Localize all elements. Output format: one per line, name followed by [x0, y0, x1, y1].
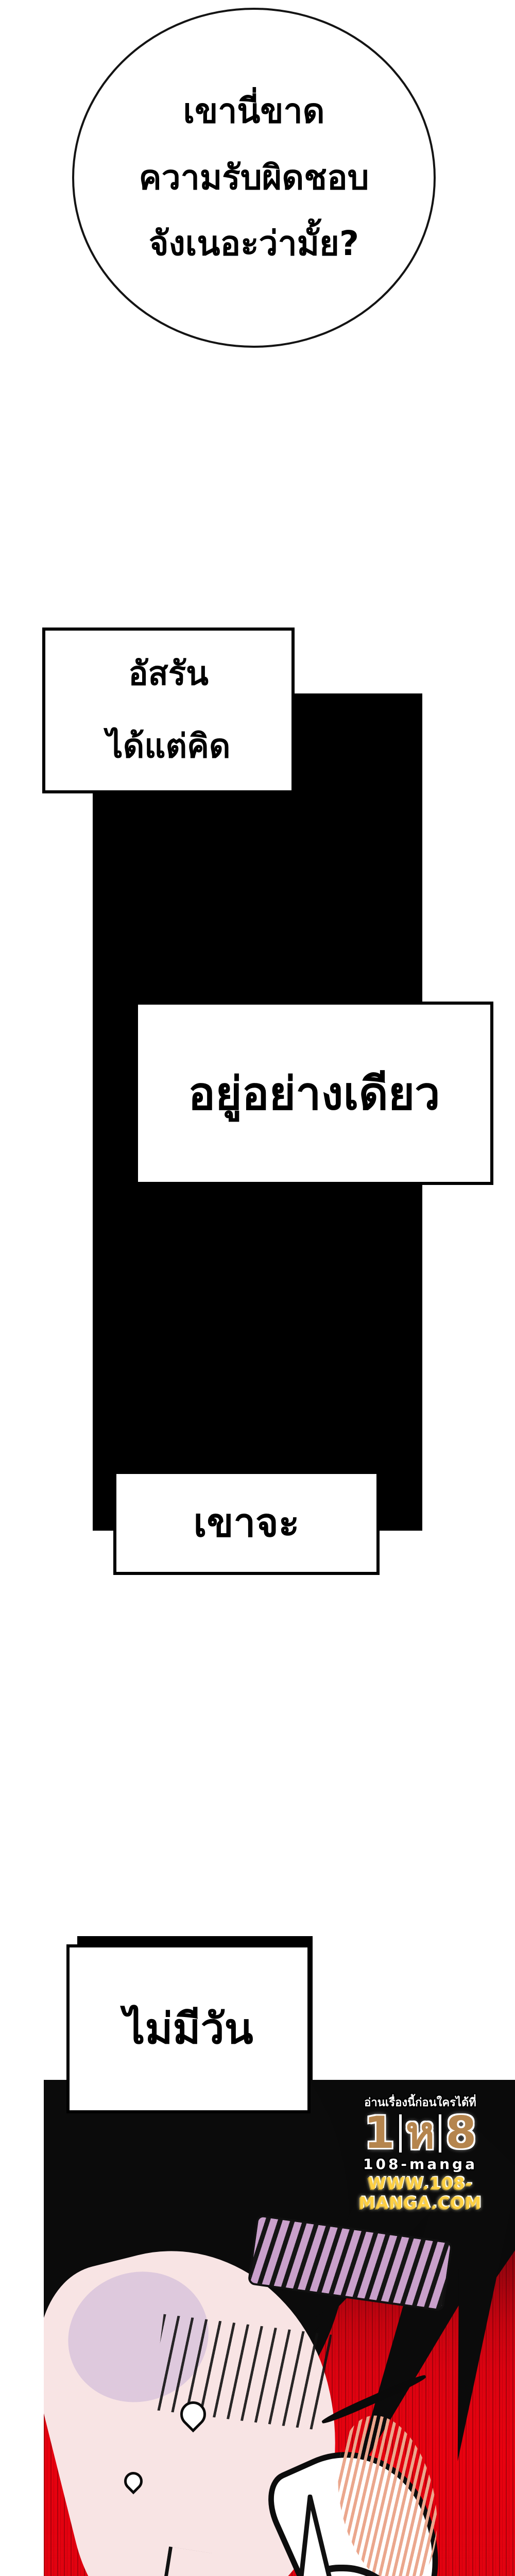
caption-line: ไม่มีวัน: [124, 1995, 253, 2062]
speech-bubble-tail: [295, 2495, 341, 2576]
caption-line: อัสรัน: [128, 638, 209, 710]
watermark-url: WWW.108-MANGA.COM: [329, 2174, 512, 2213]
speech-line: จังเนอะว่ามั้ย?: [149, 211, 359, 277]
watermark-logo-h: ห: [406, 2112, 435, 2155]
caption-box-asran: อัสรัน ได้แต่คิด: [42, 628, 295, 793]
caption-box-he-will: เขาจะ: [113, 1471, 380, 1575]
manga-page: เขานี่ขาด ความรับผิดชอบ จังเนอะว่ามั้ย? …: [0, 0, 515, 2576]
watermark-site-name: 108-manga: [363, 2156, 477, 2173]
caption-box-never-1: ไม่มีวัน: [66, 1944, 311, 2113]
caption-line: เขาจะ: [194, 1492, 300, 1554]
caption-line: ได้แต่คิด: [107, 710, 231, 783]
watermark-logo-1: 1: [364, 2112, 395, 2155]
watermark-logo: 1 ห 8: [364, 2112, 476, 2155]
caption-box-alone: อยู่อย่างเดียว: [135, 1002, 493, 1185]
manga-panel: อ่านเรื่องนี้ก่อนใครได้ที่ 1 ห 8 108-man…: [44, 2080, 515, 2576]
watermark-logo-divider: [399, 2114, 402, 2153]
speech-line: ความรับผิดชอบ: [139, 145, 369, 211]
site-watermark: อ่านเรื่องนี้ก่อนใครได้ที่ 1 ห 8 108-man…: [329, 2093, 512, 2213]
watermark-logo-divider: [439, 2114, 441, 2153]
speech-line: เขานี่ขาด: [183, 78, 325, 145]
caption-line: อยู่อย่างเดียว: [188, 1057, 440, 1129]
forehead-hatch-lines: [151, 2314, 332, 2431]
speech-bubble-top: เขานี่ขาด ความรับผิดชอบ จังเนอะว่ามั้ย?: [72, 8, 436, 348]
watermark-logo-8: 8: [445, 2112, 476, 2155]
